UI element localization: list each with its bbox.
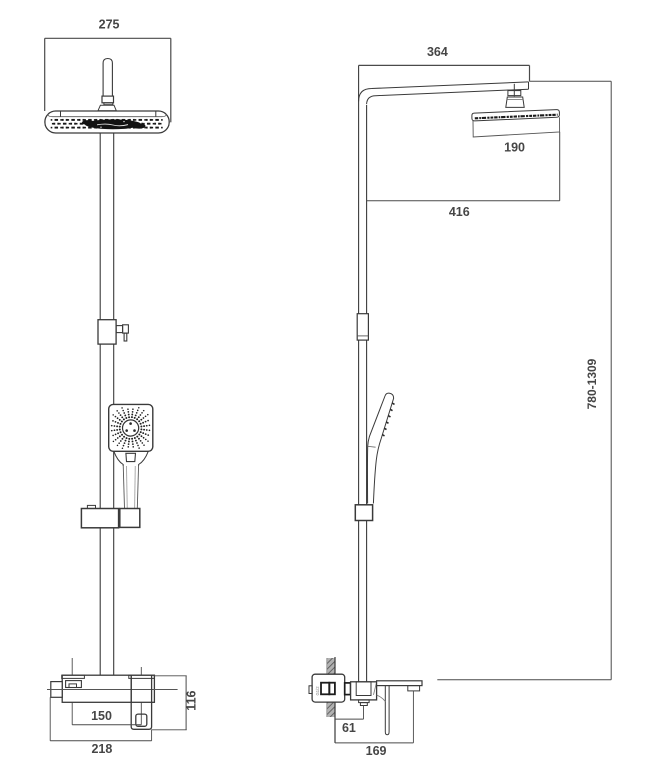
- svg-text:218: 218: [91, 742, 112, 756]
- svg-text:364: 364: [427, 45, 448, 59]
- svg-text:190: 190: [504, 141, 525, 155]
- svg-text:116: 116: [184, 690, 198, 710]
- svg-text:416: 416: [449, 205, 470, 219]
- svg-text:780-1309: 780-1309: [585, 358, 599, 409]
- svg-text:G1/2: G1/2: [315, 686, 320, 696]
- svg-text:169: 169: [366, 744, 387, 758]
- svg-text:150: 150: [91, 709, 112, 723]
- svg-text:275: 275: [99, 18, 120, 32]
- svg-text:61: 61: [342, 721, 356, 735]
